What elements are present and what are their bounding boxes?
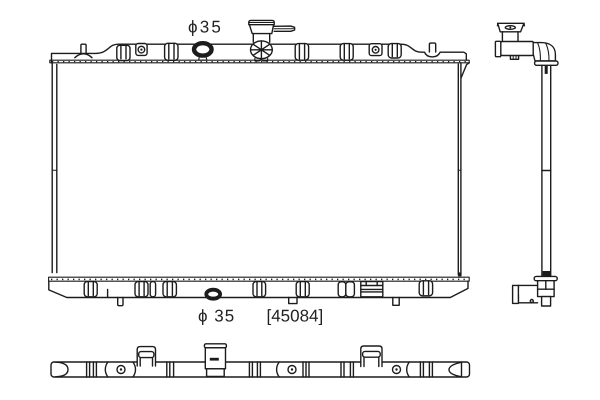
svg-text:[45084]: [45084]	[266, 306, 323, 325]
svg-text:ϕ 35: ϕ 35	[198, 306, 235, 325]
svg-text:ϕ35: ϕ35	[188, 17, 223, 36]
